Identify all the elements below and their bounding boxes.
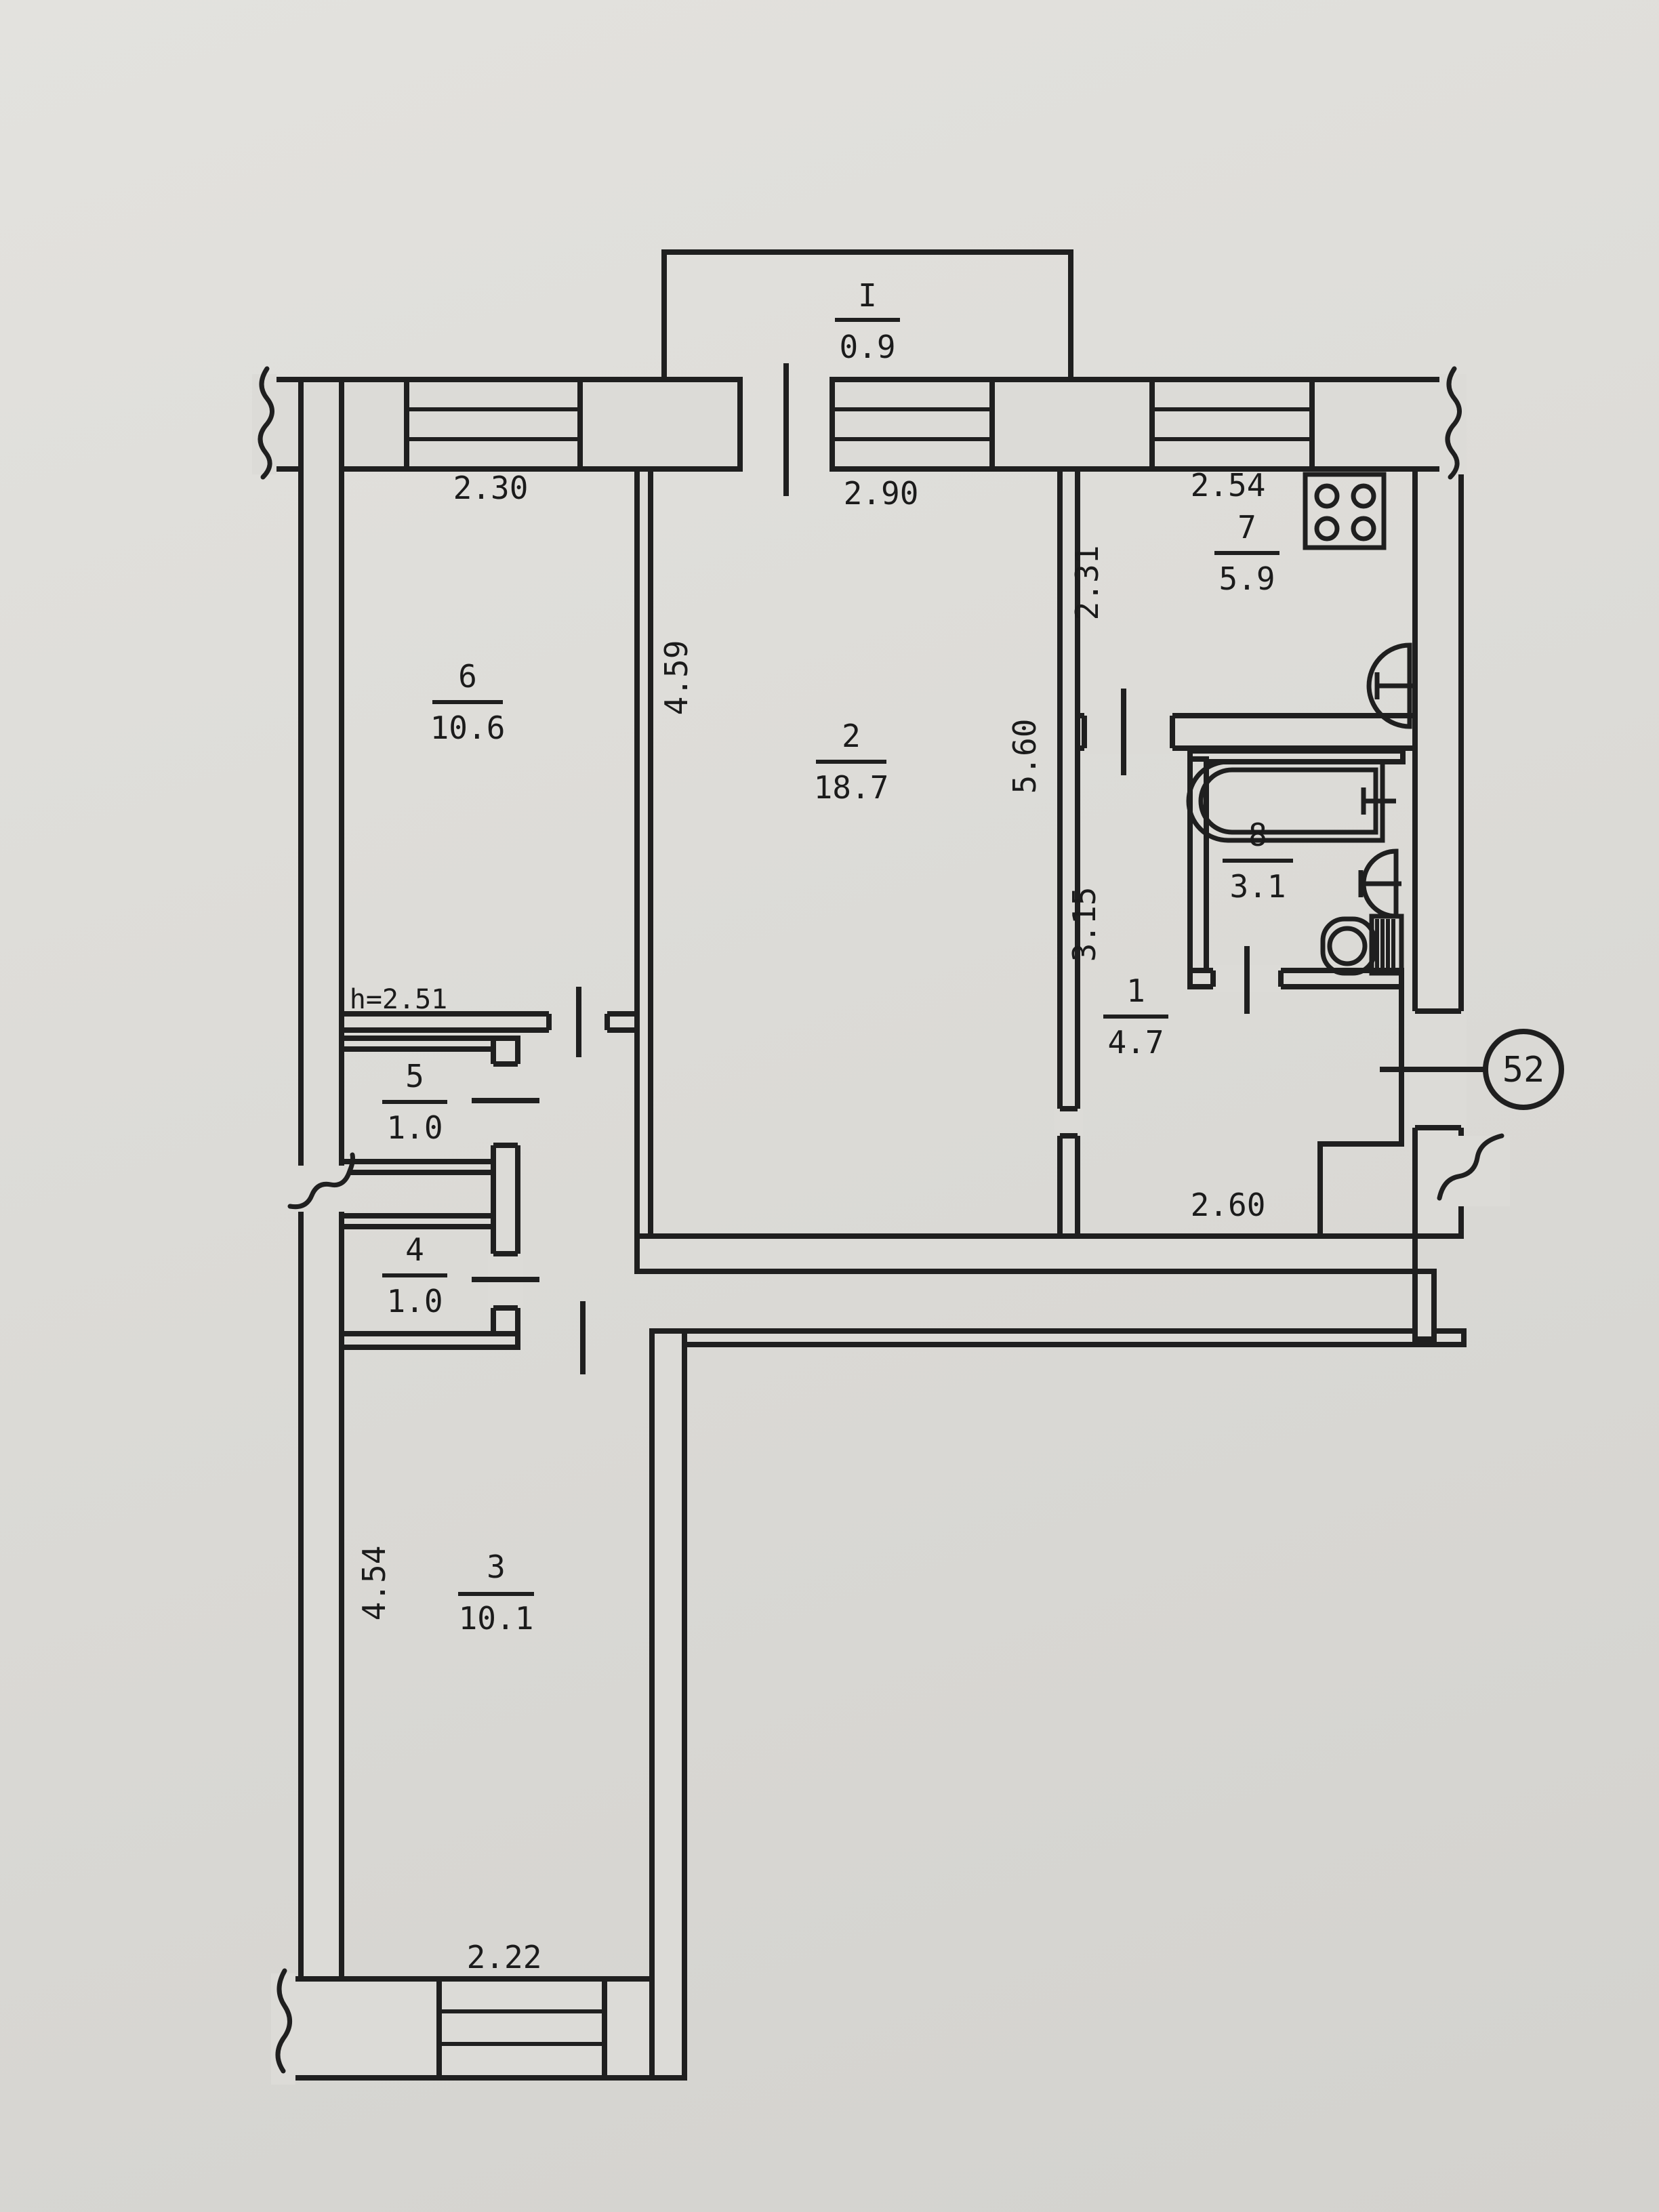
dim-top-middle: 2.90 — [844, 475, 919, 512]
room-area: 5.9 — [1218, 560, 1275, 597]
dim-room6-depth: 4.59 — [658, 640, 695, 716]
bath-sink-icon — [1361, 851, 1401, 916]
room-5-label: 5 1.0 — [382, 1058, 447, 1146]
room-number: 1 — [1126, 972, 1145, 1009]
dim-top-left: 2.30 — [453, 470, 529, 506]
room-area: 1.0 — [386, 1283, 443, 1319]
room-1-label: 1 4.7 — [1103, 972, 1168, 1061]
stove-icon — [1305, 474, 1384, 548]
room-area: 4.7 — [1107, 1024, 1164, 1061]
room-number: 6 — [458, 658, 477, 695]
room-3-label: 3 10.1 — [458, 1549, 534, 1637]
apartment-number-badge: 52 — [1486, 1031, 1561, 1107]
dim-kitchen-depth: 2.31 — [1069, 546, 1105, 621]
room-area: 3.1 — [1229, 868, 1286, 905]
balcony-number: I — [858, 277, 877, 314]
room-number: 4 — [405, 1231, 424, 1268]
floor-plan-photo: 52 I 0.9 6 10.6 2 18.7 7 5.9 8 3.1 1 4.7… — [0, 0, 1659, 2212]
walls — [258, 380, 1464, 2078]
room-number: 8 — [1248, 817, 1267, 853]
window-top-left — [407, 380, 580, 469]
bathtub-icon — [1189, 762, 1396, 840]
ceiling-height-note: h=2.51 — [350, 984, 448, 1015]
room-number: 5 — [405, 1058, 424, 1094]
apartment-number: 52 — [1502, 1050, 1545, 1090]
dim-room3-depth: 4.54 — [356, 1546, 392, 1621]
room-area: 10.1 — [459, 1600, 534, 1637]
room-number: 2 — [842, 718, 861, 754]
dim-room2-depth: 5.60 — [1006, 719, 1043, 794]
room-number: 3 — [487, 1549, 506, 1585]
room-number: 7 — [1237, 509, 1256, 546]
window-symbols — [407, 380, 1312, 2078]
dim-hall-depth: 3.15 — [1066, 887, 1103, 962]
balcony-area: 0.9 — [839, 329, 895, 365]
floor-plan-drawing: 52 I 0.9 6 10.6 2 18.7 7 5.9 8 3.1 1 4.7… — [0, 0, 1659, 2212]
room-2-label: 2 18.7 — [814, 718, 889, 806]
room-area: 10.6 — [430, 710, 506, 746]
room-4-label: 4 1.0 — [382, 1231, 447, 1319]
window-top-right — [1152, 380, 1312, 469]
dim-top-right: 2.54 — [1191, 467, 1266, 504]
window-top-middle — [832, 380, 992, 469]
room-6-label: 6 10.6 — [430, 658, 506, 746]
room-area: 18.7 — [814, 769, 889, 806]
dim-room3-width: 2.22 — [467, 1939, 542, 1975]
window-bottom — [439, 1979, 605, 2078]
toilet-icon — [1323, 916, 1401, 973]
room-7-label: 7 5.9 — [1214, 509, 1279, 597]
room-area: 1.0 — [386, 1109, 443, 1146]
door-tick-marks — [472, 363, 1486, 1374]
dim-hall-width: 2.60 — [1191, 1187, 1266, 1223]
balcony-label: I 0.9 — [835, 277, 900, 365]
